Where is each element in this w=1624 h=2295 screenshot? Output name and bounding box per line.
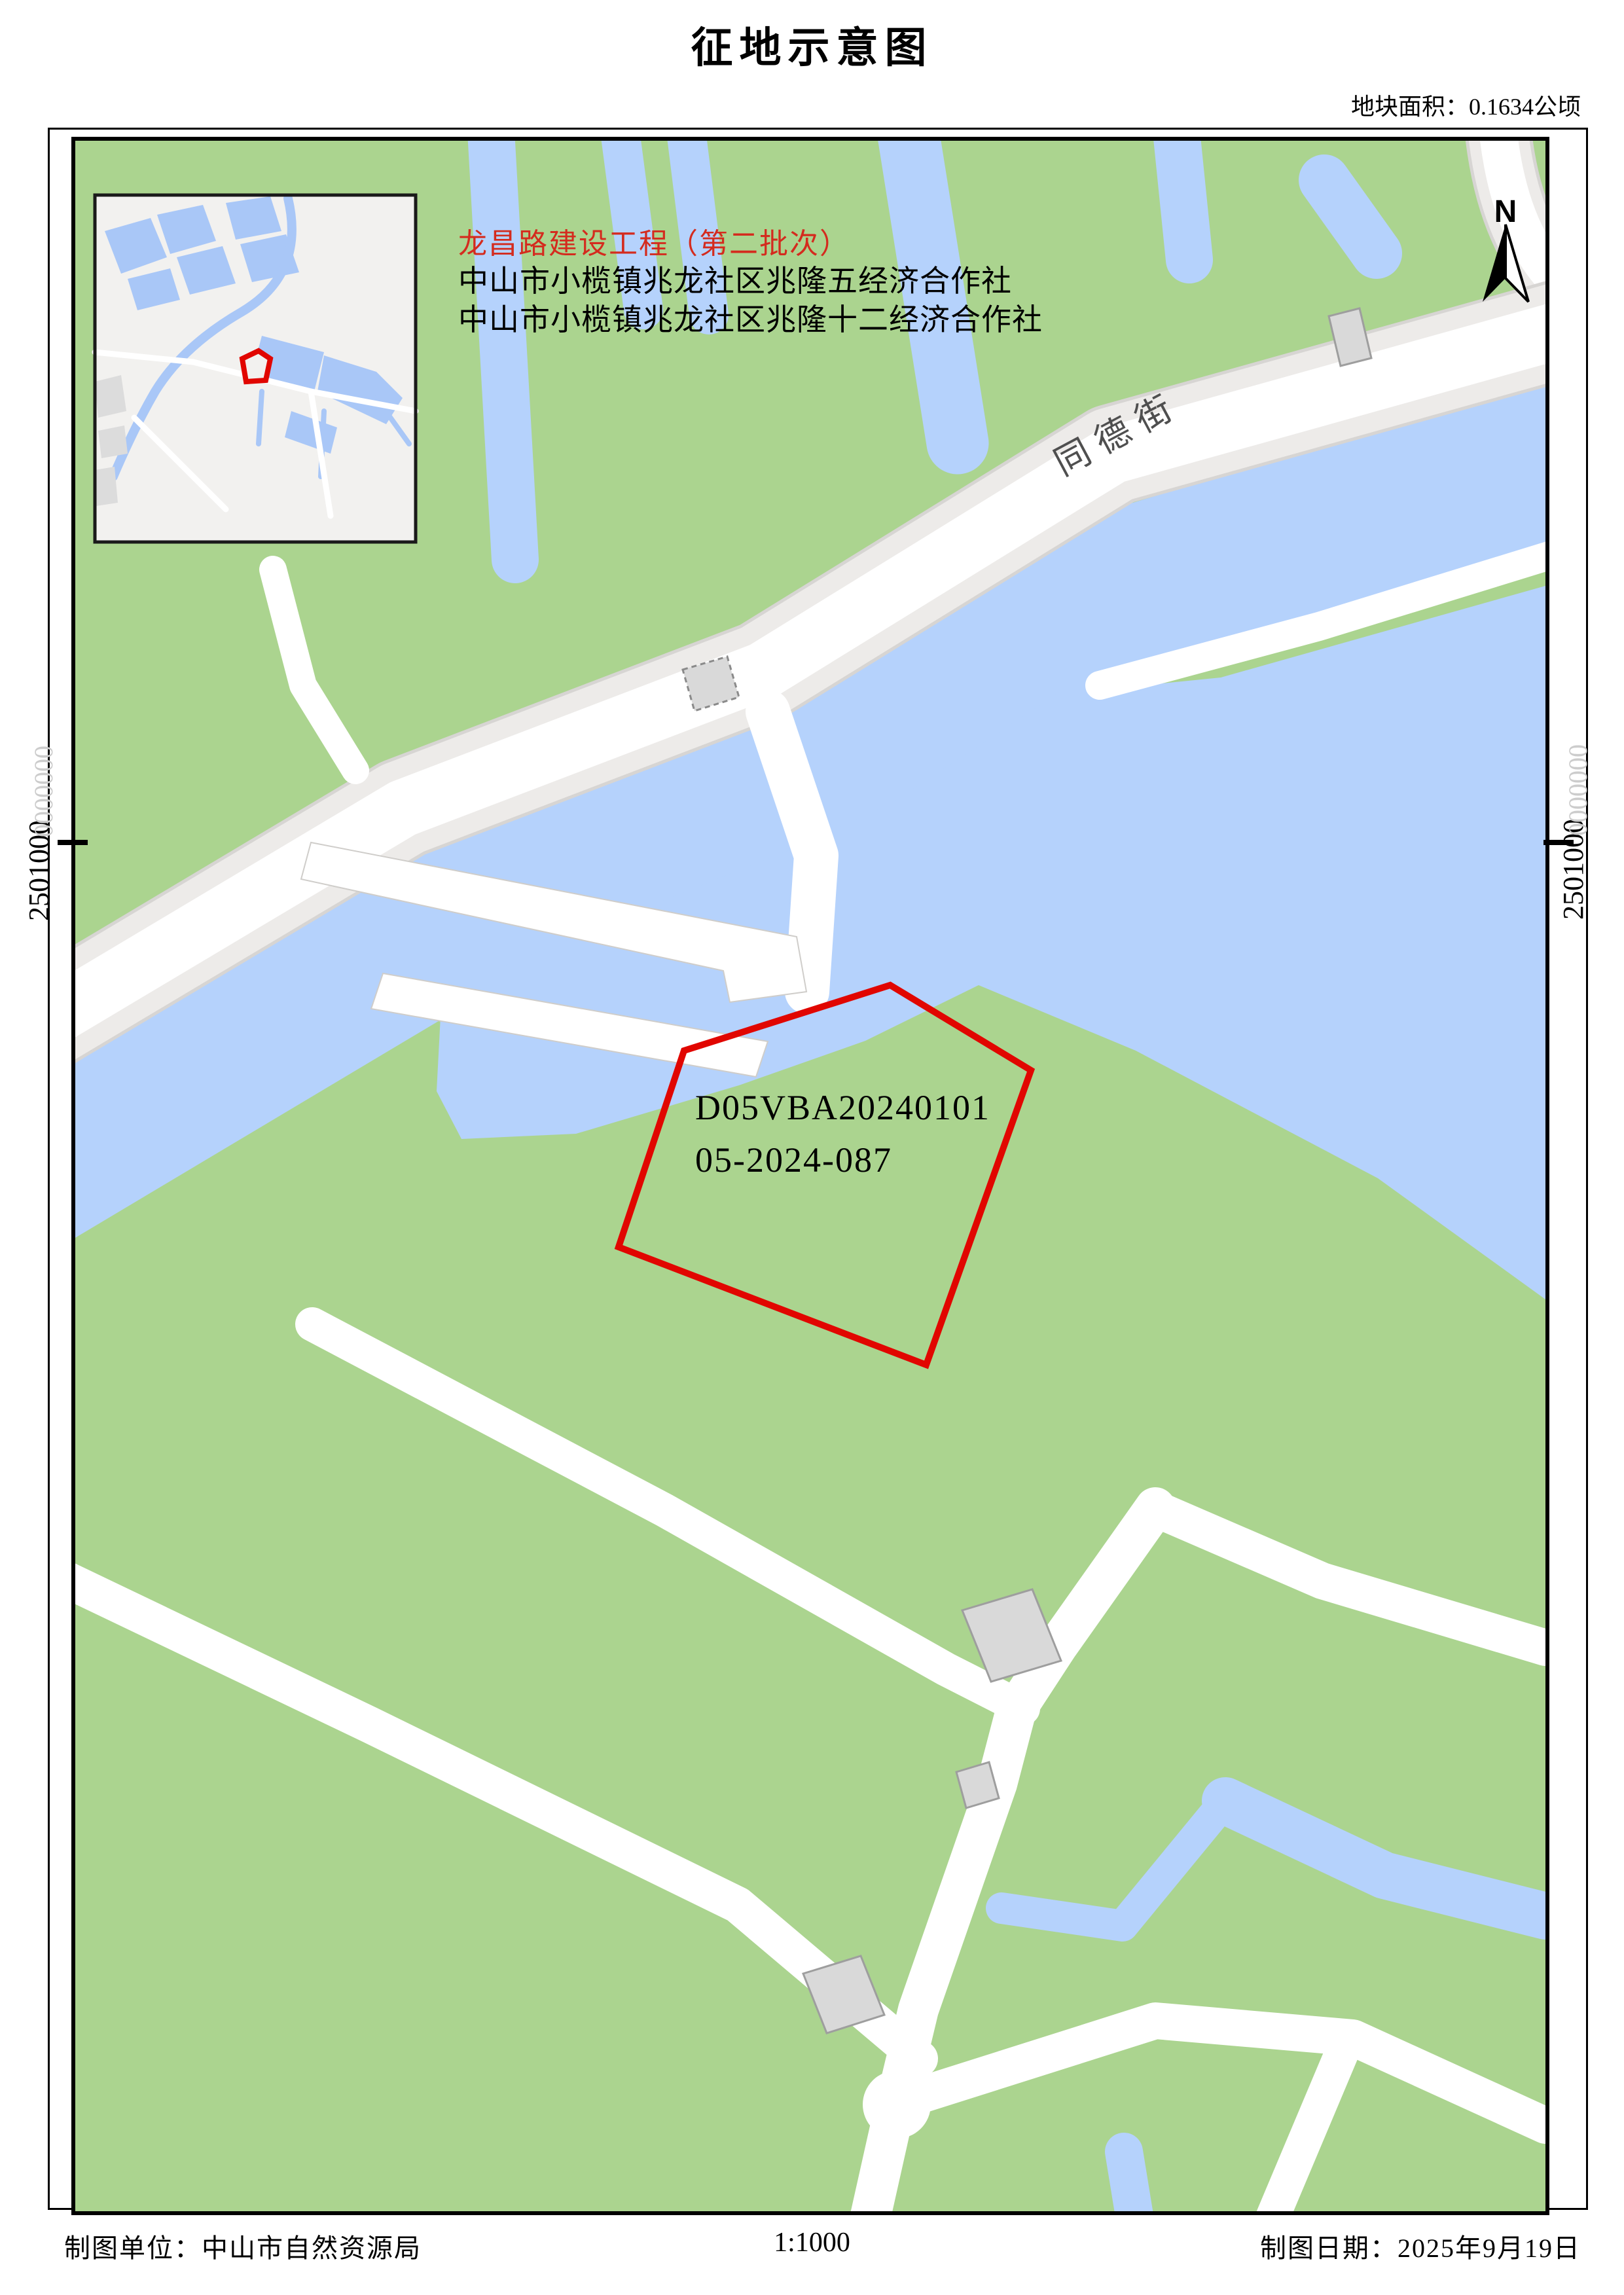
cooperative-line2: 中山市小榄镇兆龙社区兆隆十二经济合作社 bbox=[458, 300, 1043, 339]
coordinate-faded-left: 0000000 bbox=[28, 719, 56, 863]
grid-tick-left bbox=[58, 840, 88, 845]
footer-date: 制图日期：2025年9月19日 bbox=[1260, 2227, 1581, 2265]
cooperative-names: 中山市小榄镇兆龙社区兆隆五经济合作社 中山市小榄镇兆龙社区兆隆十二经济合作社 bbox=[458, 262, 1043, 339]
parcel-code: D05VBA20240101 05-2024-087 bbox=[695, 1081, 990, 1186]
parcel-code-line1: D05VBA20240101 bbox=[695, 1081, 990, 1134]
grid-tick-right bbox=[1543, 840, 1574, 845]
parcel-code-line2: 05-2024-087 bbox=[695, 1134, 990, 1186]
inset-map bbox=[95, 195, 416, 542]
canal bbox=[1176, 141, 1189, 260]
canal bbox=[491, 141, 515, 560]
inset-parcel-outline bbox=[242, 351, 270, 382]
road-junction bbox=[863, 2070, 931, 2139]
project-title: 龙昌路建设工程（第二批次） bbox=[458, 220, 850, 262]
page-title: 征地示意图 bbox=[0, 14, 1624, 75]
land-acquisition-map-page: 征地示意图 地块面积：0.1634公顷 bbox=[0, 0, 1624, 2295]
canal bbox=[1124, 2152, 1134, 2211]
north-letter: N bbox=[1473, 194, 1538, 230]
plot-area-label: 地块面积：0.1634公顷 bbox=[1351, 88, 1581, 122]
cooperative-line1: 中山市小榄镇兆龙社区兆隆五经济合作社 bbox=[458, 262, 1043, 300]
